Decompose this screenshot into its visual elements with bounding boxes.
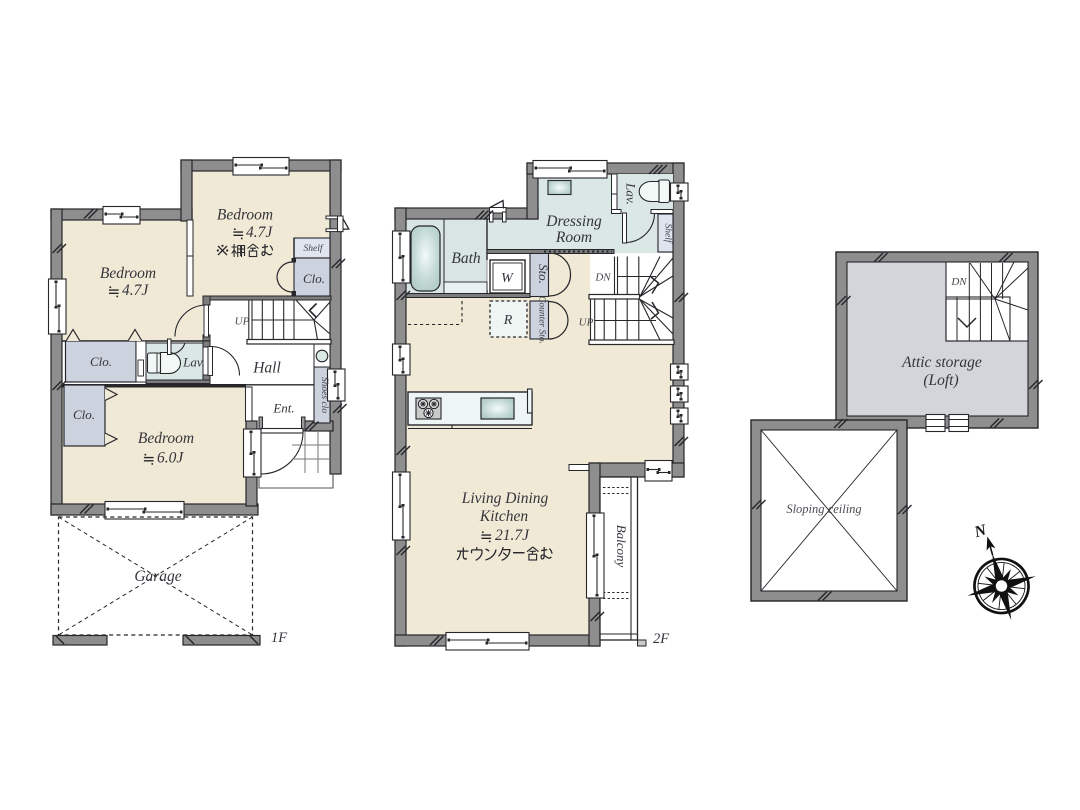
svg-text:Room: Room [555, 229, 592, 246]
svg-text:Counter Sto.: Counter Sto. [537, 296, 547, 344]
svg-text:21.7J: 21.7J [495, 527, 530, 544]
svg-text:Clo.: Clo. [303, 271, 325, 286]
svg-text:2F: 2F [653, 631, 669, 647]
svg-text:Shoes clo: Shoes clo [319, 377, 329, 413]
svg-text:1F: 1F [271, 630, 287, 646]
svg-text:(Loft): (Loft) [923, 372, 958, 389]
svg-text:DN: DN [594, 272, 611, 284]
svg-text:Shelf: Shelf [663, 224, 674, 244]
svg-text:Bedroom: Bedroom [217, 207, 273, 224]
svg-text:Bath: Bath [451, 250, 481, 267]
svg-text:Hall: Hall [252, 360, 281, 377]
svg-text:4.7J: 4.7J [122, 282, 149, 299]
svg-text:Attic storage: Attic storage [901, 354, 982, 371]
svg-text:Clo.: Clo. [73, 407, 95, 422]
svg-text:6.0J: 6.0J [157, 450, 184, 467]
svg-text:Clo.: Clo. [90, 354, 112, 369]
svg-text:Garage: Garage [134, 568, 181, 585]
svg-text:UP: UP [579, 317, 594, 329]
svg-text:Sloping ceiling: Sloping ceiling [786, 502, 861, 516]
svg-text:Lav.: Lav. [182, 355, 205, 370]
svg-text:Kitchen: Kitchen [479, 508, 528, 525]
svg-text:Dressing: Dressing [545, 213, 602, 230]
svg-text:Living Dining: Living Dining [461, 490, 549, 507]
svg-text:Shelf: Shelf [304, 243, 324, 254]
svg-text:Bedroom: Bedroom [100, 265, 156, 282]
svg-text:Balcony: Balcony [614, 525, 629, 568]
svg-text:Bedroom: Bedroom [138, 430, 194, 447]
svg-text:UP: UP [235, 316, 250, 328]
svg-text:DN: DN [950, 276, 967, 288]
svg-text:4.7J: 4.7J [246, 224, 273, 241]
svg-text:Sto.: Sto. [536, 264, 551, 284]
svg-text:Lav.: Lav. [624, 182, 639, 205]
svg-text:W: W [501, 271, 514, 286]
svg-text:Ent.: Ent. [272, 401, 294, 416]
svg-text:R: R [503, 313, 513, 328]
